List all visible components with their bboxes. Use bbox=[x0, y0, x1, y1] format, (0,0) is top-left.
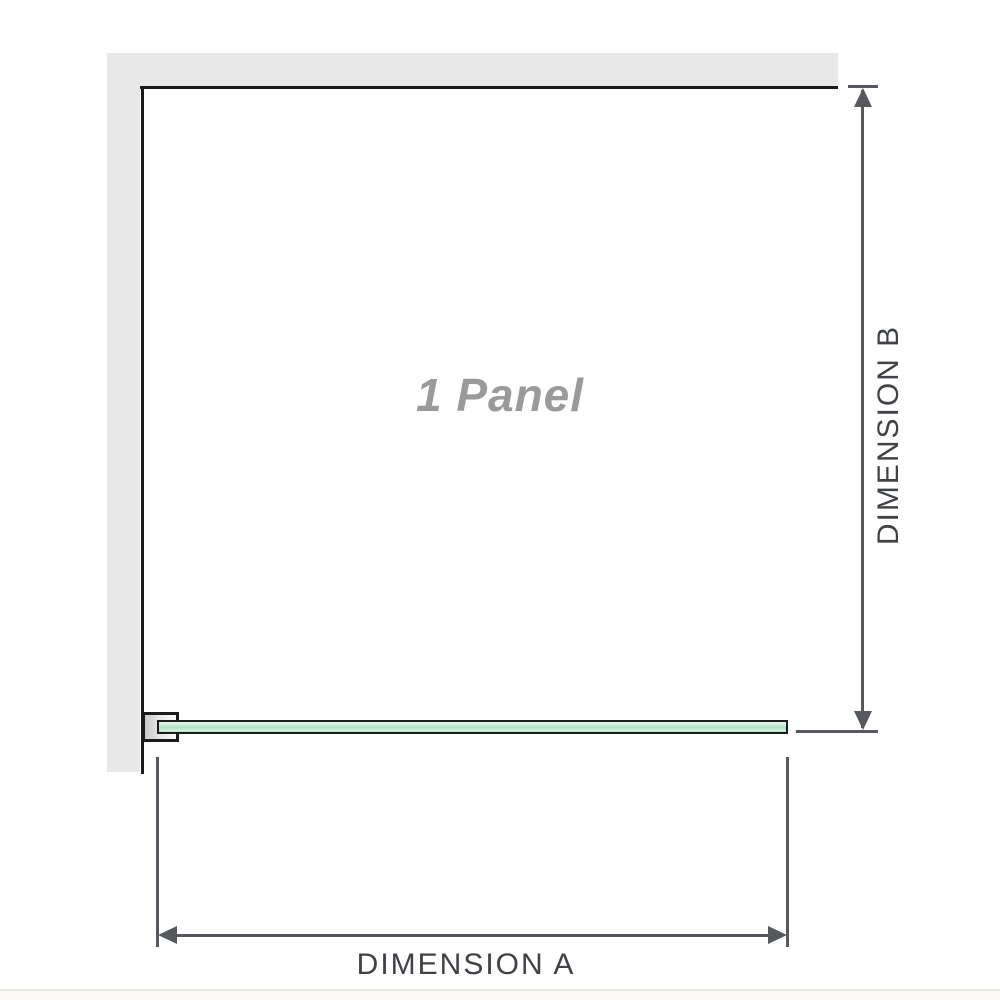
arrow-right-icon bbox=[768, 926, 787, 944]
glass-panel bbox=[157, 720, 788, 734]
wall-top-band bbox=[107, 53, 838, 86]
shower-panel-diagram: 1 Panel DIMENSION B DIMENSION A bbox=[0, 0, 1000, 1000]
enclosure-top-edge bbox=[140, 86, 838, 89]
enclosure-left-edge bbox=[141, 86, 144, 774]
arrow-down-icon bbox=[854, 711, 872, 730]
dimension-a-line bbox=[162, 934, 782, 937]
page-bottom-strip bbox=[0, 991, 1000, 1000]
arrow-up-icon bbox=[854, 88, 872, 107]
dimension-a-label: DIMENSION A bbox=[357, 948, 576, 982]
dimension-b-label: DIMENSION B bbox=[872, 325, 906, 545]
dimension-b-bottom-tick bbox=[796, 730, 878, 733]
arrow-left-icon bbox=[158, 926, 177, 944]
dimension-b-line bbox=[861, 90, 864, 728]
wall-left-band bbox=[107, 53, 140, 772]
dimension-a-right-extension bbox=[786, 757, 789, 947]
panel-count-label: 1 Panel bbox=[416, 368, 584, 422]
dimension-a-left-extension bbox=[156, 757, 159, 947]
